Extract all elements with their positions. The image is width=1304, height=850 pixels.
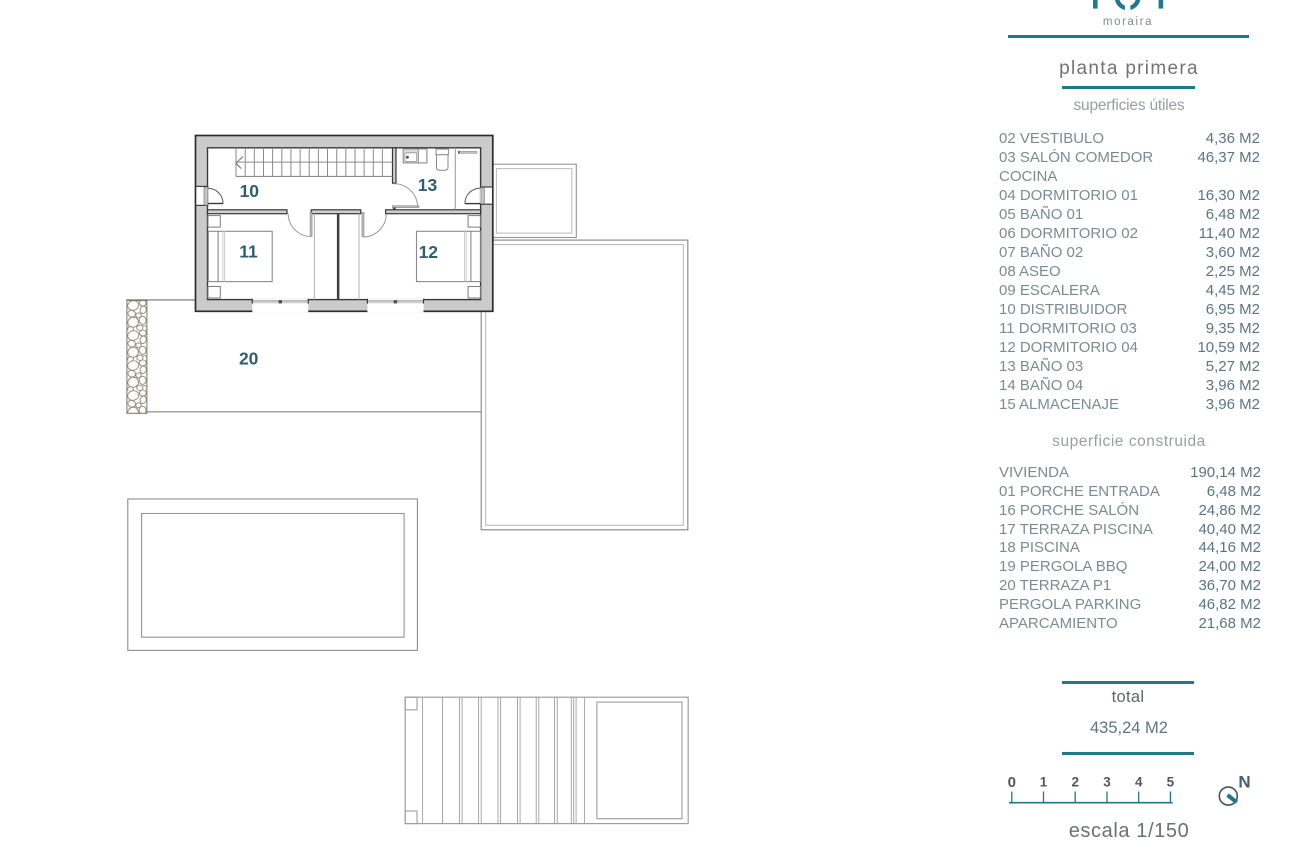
svg-text:11: 11: [239, 241, 258, 261]
svg-text:3: 3: [1103, 775, 1111, 790]
svg-text:10: 10: [240, 181, 260, 201]
svg-text:1: 1: [1040, 775, 1048, 790]
svg-text:5: 5: [1167, 775, 1175, 790]
svg-text:12: 12: [419, 242, 439, 262]
svg-text:4: 4: [1135, 775, 1143, 790]
svg-text:0: 0: [1008, 774, 1016, 791]
svg-text:2: 2: [1071, 775, 1079, 790]
svg-text:20: 20: [239, 348, 259, 368]
svg-text:N: N: [1238, 773, 1250, 792]
svg-text:13: 13: [418, 175, 438, 195]
